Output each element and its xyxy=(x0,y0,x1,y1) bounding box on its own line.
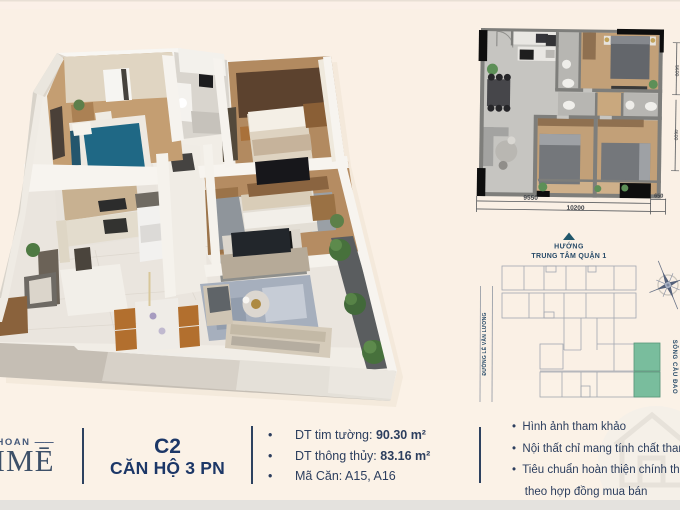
svg-text:SÔNG CẦU ĐAO: SÔNG CẦU ĐAO xyxy=(671,340,679,395)
svg-text:5600: 5600 xyxy=(673,65,679,76)
svg-text:HƯỚNG: HƯỚNG xyxy=(554,242,584,251)
svg-text:650: 650 xyxy=(654,193,663,199)
svg-text:4600: 4600 xyxy=(672,129,678,140)
svg-text:9550: 9550 xyxy=(523,195,538,202)
svg-text:10200: 10200 xyxy=(566,205,585,212)
svg-text:TRUNG TÂM QUẬN 1: TRUNG TÂM QUẬN 1 xyxy=(531,251,606,260)
svg-text:ĐƯỜNG LÊ VĂN LƯƠNG: ĐƯỜNG LÊ VĂN LƯƠNG xyxy=(480,312,488,375)
